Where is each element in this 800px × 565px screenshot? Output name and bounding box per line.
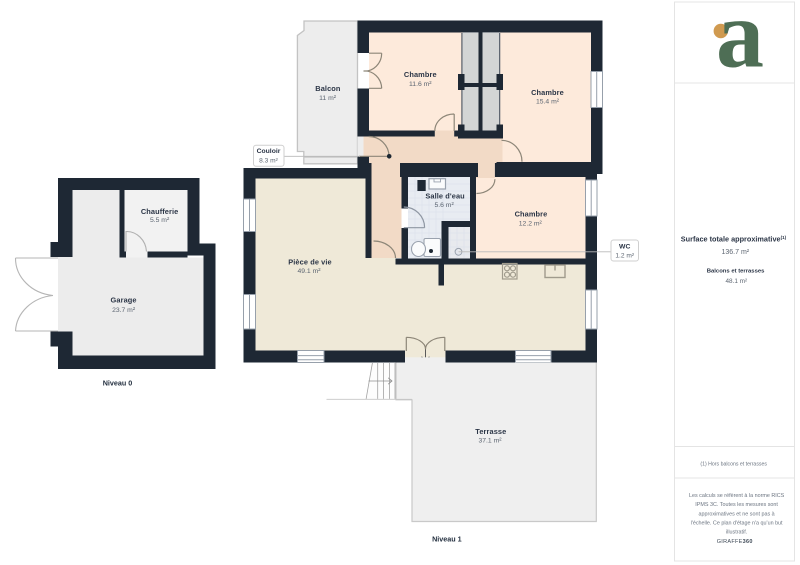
svg-text:Chambre: Chambre [404, 70, 437, 79]
svg-text:Balcons et terrasses: Balcons et terrasses [707, 268, 765, 274]
svg-text:Couloir: Couloir [257, 148, 281, 155]
svg-text:48.1 m²: 48.1 m² [725, 278, 747, 285]
svg-text:136.7 m²: 136.7 m² [721, 249, 749, 256]
svg-text:15.4 m²: 15.4 m² [536, 99, 560, 106]
svg-text:Salle d'eau: Salle d'eau [425, 192, 465, 201]
svg-text:1.2 m²: 1.2 m² [615, 253, 634, 260]
svg-text:Les calculs se réfèrent à la n: Les calculs se réfèrent à la norme RICS [689, 493, 785, 499]
svg-text:Chambre: Chambre [515, 210, 548, 219]
svg-text:Pièce de vie: Pièce de vie [288, 257, 332, 266]
svg-text:WC: WC [619, 243, 630, 250]
svg-text:Terrasse: Terrasse [475, 427, 506, 436]
svg-text:Chaufferie: Chaufferie [141, 207, 179, 216]
svg-text:(1) Hors balcons et terrasses: (1) Hors balcons et terrasses [700, 461, 767, 467]
svg-text:GIRAFFE360: GIRAFFE360 [717, 539, 753, 545]
svg-text:Chambre: Chambre [531, 88, 564, 97]
svg-text:5.5 m²: 5.5 m² [150, 217, 170, 224]
svg-text:l'échelle. Ce plan d'étage n'a: l'échelle. Ce plan d'étage n'a qu'un but [691, 521, 783, 527]
svg-text:Niveau 1: Niveau 1 [432, 535, 462, 544]
svg-text:IPMS 3C. Toutes les mesures so: IPMS 3C. Toutes les mesures sont [695, 502, 778, 508]
svg-text:Garage: Garage [111, 295, 137, 304]
svg-text:Niveau 0: Niveau 0 [103, 379, 133, 388]
svg-text:11 m²: 11 m² [319, 95, 337, 102]
svg-text:12.2 m²: 12.2 m² [519, 221, 543, 228]
svg-text:approximatives et ne sont pas: approximatives et ne sont pas à [699, 511, 775, 517]
svg-text:a: a [716, 0, 764, 88]
svg-text:Surface totale approximative(1: Surface totale approximative(1) [681, 234, 787, 243]
svg-text:37.1 m²: 37.1 m² [478, 438, 502, 445]
svg-text:Balcon: Balcon [315, 84, 341, 93]
svg-text:illustratif.: illustratif. [726, 529, 747, 535]
svg-text:8.3 m²: 8.3 m² [259, 158, 278, 165]
svg-text:49.1 m²: 49.1 m² [297, 268, 321, 275]
svg-text:11.6 m²: 11.6 m² [409, 81, 432, 88]
svg-text:5.6 m²: 5.6 m² [434, 202, 454, 209]
svg-text:23.7 m²: 23.7 m² [112, 307, 136, 314]
